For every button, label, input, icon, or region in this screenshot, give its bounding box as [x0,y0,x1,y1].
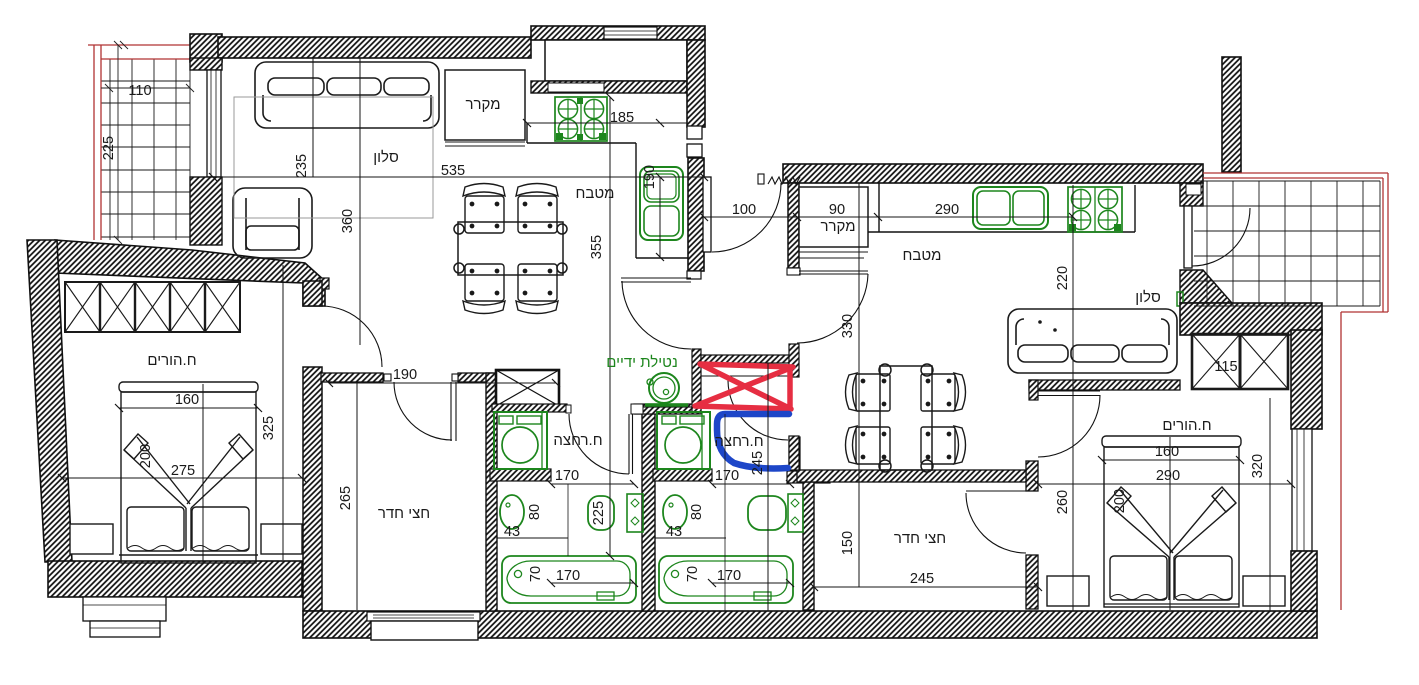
svg-text:נטילת ידיים: נטילת ידיים [606,354,678,371]
svg-text:חצי חדר: חצי חדר [894,530,946,547]
svg-text:80: 80 [689,504,705,520]
svg-text:150: 150 [840,531,856,555]
svg-text:70: 70 [685,566,701,582]
svg-text:43: 43 [504,524,520,540]
svg-text:מטבח: מטבח [903,247,942,264]
svg-text:100: 100 [732,202,756,218]
svg-text:ח.רחצה: ח.רחצה [714,433,763,450]
svg-text:115: 115 [1214,359,1237,375]
svg-text:170: 170 [556,568,580,584]
svg-text:245: 245 [910,571,934,587]
svg-text:330: 330 [840,314,856,338]
svg-text:535: 535 [441,163,465,179]
svg-text:200: 200 [138,444,154,468]
svg-text:170: 170 [717,568,741,584]
svg-text:170: 170 [715,468,739,484]
svg-text:חצי חדר: חצי חדר [378,505,430,522]
svg-text:מקרר: מקרר [465,96,500,113]
svg-text:225: 225 [101,136,117,160]
svg-text:190: 190 [393,367,417,383]
svg-text:170: 170 [555,468,579,484]
svg-text:160: 160 [175,392,199,408]
svg-text:80: 80 [527,504,543,520]
svg-text:160: 160 [1155,444,1179,460]
svg-text:מטבח: מטבח [576,185,615,202]
svg-text:260: 260 [1055,490,1071,514]
svg-text:43: 43 [666,524,682,540]
svg-text:90: 90 [829,202,845,218]
svg-text:מקרר: מקרר [820,218,855,235]
svg-text:185: 185 [610,110,634,126]
svg-text:245: 245 [750,451,766,475]
svg-text:190: 190 [642,165,658,189]
svg-text:265: 265 [338,486,354,510]
svg-text:ח.הורים: ח.הורים [147,352,196,369]
svg-text:220: 220 [1055,266,1071,290]
svg-text:275: 275 [171,463,195,479]
svg-text:360: 360 [340,209,356,233]
svg-text:ח.רחצה: ח.רחצה [553,432,602,449]
svg-text:70: 70 [528,566,544,582]
svg-text:ח.הורים: ח.הורים [1162,417,1211,434]
svg-text:290: 290 [935,202,959,218]
svg-text:320: 320 [1250,454,1266,478]
svg-text:290: 290 [1156,468,1180,484]
svg-text:סלון: סלון [373,149,399,166]
svg-text:200: 200 [1112,489,1128,513]
svg-text:110: 110 [128,83,151,99]
svg-text:235: 235 [294,154,310,178]
svg-text:225: 225 [591,501,607,525]
svg-text:355: 355 [589,235,605,259]
svg-text:325: 325 [261,416,277,440]
svg-text:סלון: סלון [1135,289,1161,306]
